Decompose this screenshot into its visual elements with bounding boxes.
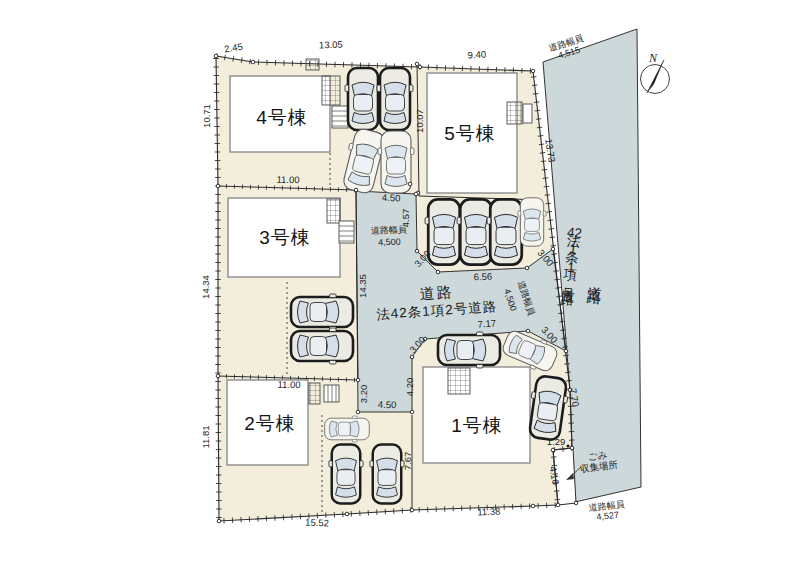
dim-7-67: 7.67 [402, 452, 413, 471]
entrance-stairs-4 [332, 106, 348, 128]
dim-3-20: 3.20 [358, 385, 369, 404]
building-2-label: 2号棟 [244, 413, 296, 434]
car-icon [377, 68, 413, 130]
dim-1-29: 1.29 [547, 436, 566, 447]
dim-10-07: 10.07 [414, 109, 425, 133]
entrance-porch-3 [327, 199, 340, 223]
dim-4-20: 4.20 [404, 378, 415, 397]
dim-11-81: 11.81 [200, 425, 211, 448]
site-plan-svg: 4号棟 5号棟 3号棟 2号棟 1号棟 道路 法42条1項2号道路 道路幅員 4… [0, 0, 800, 583]
entrance-porch-2 [309, 383, 320, 404]
dim-14-34: 14.34 [200, 275, 211, 299]
entrance-stairs-2 [324, 385, 339, 402]
compass-icon: N [641, 51, 670, 94]
dim-13-73: 13.73 [543, 138, 557, 163]
car-icon [291, 294, 353, 330]
road-width-mid-left-value: 4,500 [378, 237, 401, 248]
car-icon [487, 199, 525, 264]
car-icon [291, 328, 353, 364]
car-icon [345, 68, 381, 130]
building-5-label: 5号棟 [444, 123, 496, 144]
dim-11-00-bottom: 11.00 [277, 379, 300, 390]
building-4-label: 4号棟 [256, 107, 308, 128]
right-road-name-part3: 条1項1号道路 [562, 239, 582, 284]
car-icon [370, 445, 404, 504]
utility-box [306, 59, 319, 70]
dim-9-40: 9.40 [467, 49, 486, 61]
dim-15-52: 15.52 [305, 517, 329, 529]
car-icon [325, 416, 370, 442]
dim-13-05: 13.05 [319, 39, 343, 51]
car-icon [438, 332, 500, 368]
road-width-bottom: 道路幅員 4,527 [588, 499, 626, 523]
building-3-label: 3号棟 [259, 227, 311, 248]
dim-2-45: 2.45 [223, 41, 243, 55]
dim-11-00-top: 11.00 [276, 174, 299, 185]
dim-11-38: 11.38 [477, 505, 501, 517]
dim-10-71: 10.71 [201, 104, 212, 128]
center-road-heading: 道路 [419, 283, 454, 302]
dim-7-17: 7.17 [477, 317, 496, 329]
dim-4-57: 4.57 [400, 209, 411, 228]
dim-4-50-top: 4.50 [382, 192, 401, 204]
dim-14-35: 14.35 [357, 274, 368, 298]
road-width-bottom-value: 4,527 [596, 510, 619, 522]
entrance-porch-5 [507, 102, 522, 124]
entrance-step-5 [523, 104, 532, 123]
car-icon [518, 198, 546, 246]
dim-4-50-south: 4.50 [378, 399, 397, 410]
site-plan: 4号棟 5号棟 3号棟 2号棟 1号棟 道路 法42条1項2号道路 道路幅員 4… [0, 0, 800, 583]
compass-n-label: N [648, 51, 658, 65]
entrance-stairs-3 [339, 221, 354, 243]
building-1-label: 1号棟 [451, 415, 503, 436]
car-icon [329, 445, 363, 504]
entrance-porch-1 [448, 368, 470, 394]
entrance-porch-4 [322, 76, 340, 105]
dim-6-56: 6.56 [473, 271, 492, 283]
